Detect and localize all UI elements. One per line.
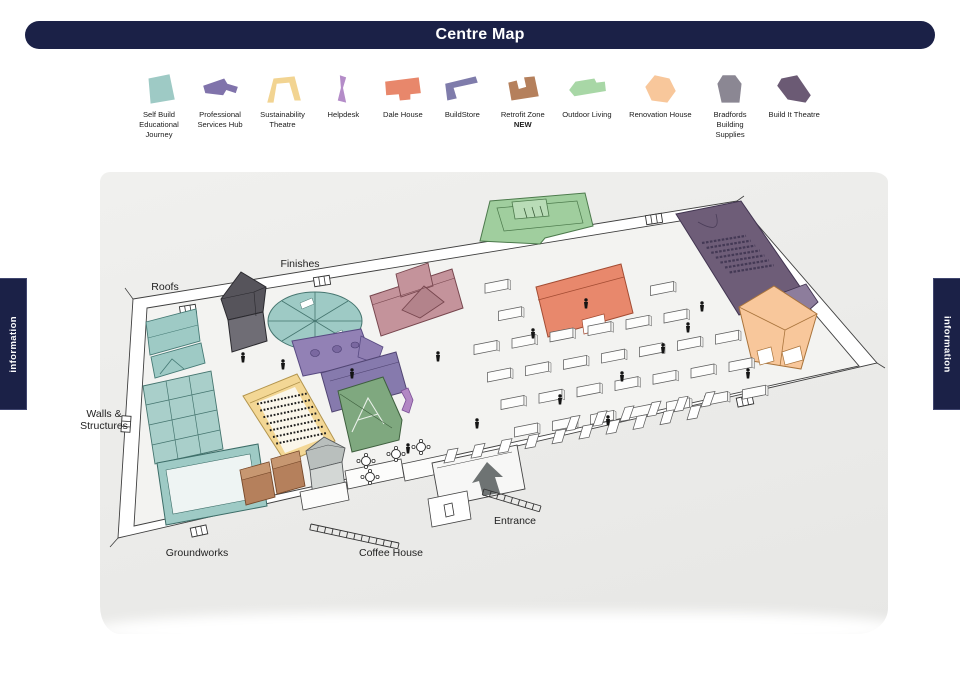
page: Centre Map Self Build Educational Journe…	[0, 0, 960, 687]
label-groundworks: Groundworks	[166, 547, 228, 559]
label-coffee-house: Coffee House	[359, 547, 423, 559]
label-roofs: Roofs	[151, 281, 178, 293]
label-finishes: Finishes	[280, 258, 319, 270]
label-walls-line2: Structures	[80, 420, 128, 432]
centre-map-svg: Finishes Roofs Walls & Structures Ground…	[0, 0, 960, 687]
label-entrance: Entrance	[494, 515, 536, 527]
display-walls-structures	[143, 371, 223, 464]
label-walls-line1: Walls &	[86, 408, 121, 420]
